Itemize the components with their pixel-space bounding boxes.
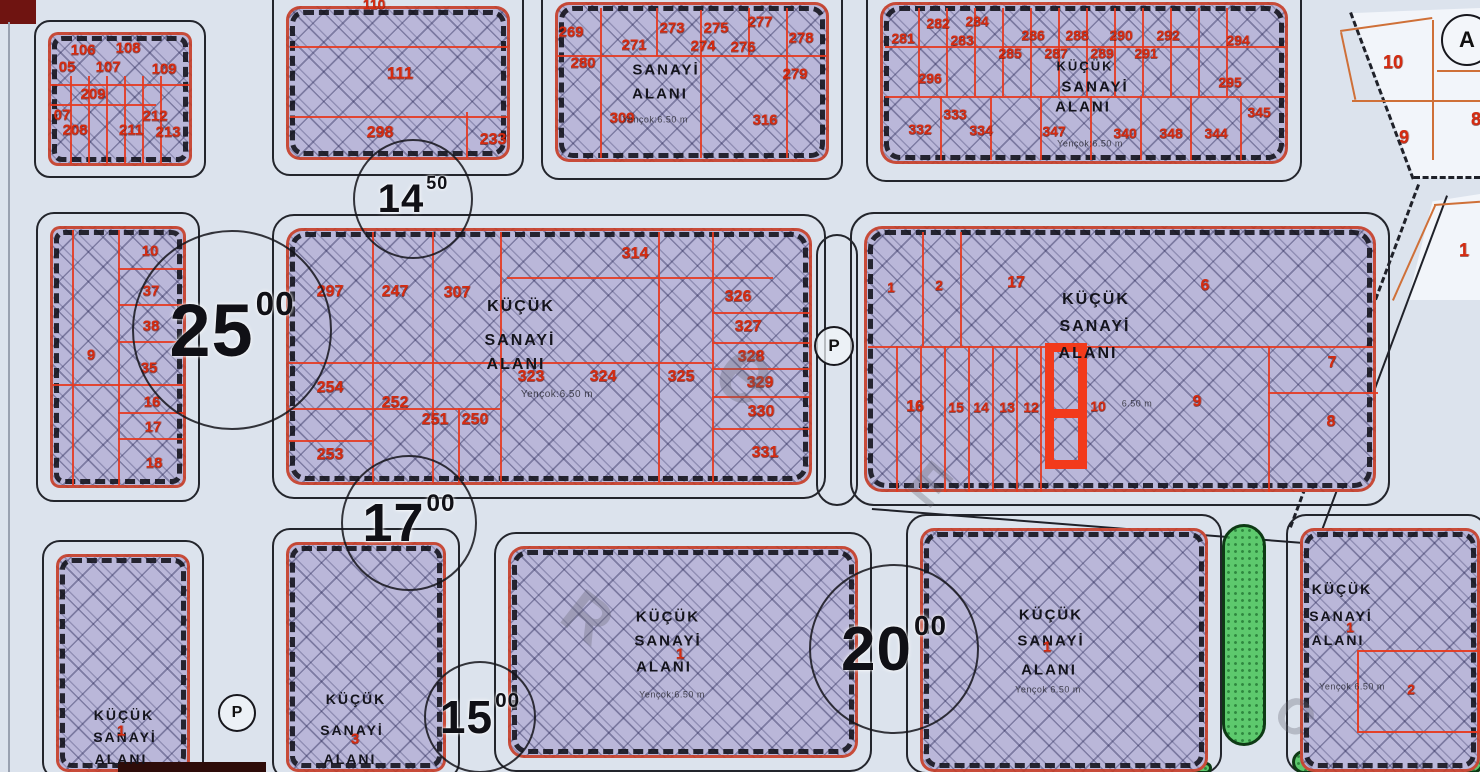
- area-label: ALANI: [1312, 633, 1365, 647]
- parcel-number: 345: [1247, 105, 1270, 119]
- parcel-number: 296: [918, 71, 941, 85]
- road-width-value: 1450: [378, 177, 449, 222]
- green-strip: [1222, 524, 1266, 746]
- area-label: KÜÇÜK: [1062, 292, 1130, 308]
- area-label: ALANI: [1059, 346, 1118, 362]
- parcel-line: [124, 76, 126, 164]
- parcel-number: 8: [1471, 110, 1480, 128]
- parcel-line: [885, 46, 1285, 48]
- parcel-number: 209: [80, 87, 105, 102]
- parcel-number: 314: [622, 246, 649, 262]
- parcel-number: 10: [142, 244, 159, 259]
- road-width-circle: 2000: [809, 564, 979, 734]
- road-width-value: 2500: [169, 288, 294, 373]
- parcel-number: 1: [1346, 620, 1354, 634]
- road-width-value: 1500: [440, 690, 520, 744]
- parcel-number: 326: [725, 289, 752, 305]
- parcel-number: 279: [782, 67, 807, 82]
- white-parcel-zone: [1408, 194, 1480, 300]
- parcel-number: 344: [1204, 126, 1227, 140]
- area-label: SANAYİ: [634, 634, 701, 649]
- parcel-number: 110: [363, 0, 386, 11]
- area-label: SANAYİ: [485, 333, 556, 349]
- map-edge-bar: [0, 0, 36, 24]
- parcel-number: 298: [367, 125, 394, 141]
- parcel-number: 05: [59, 60, 76, 75]
- parcel-line: [960, 232, 962, 346]
- parcel-line: [940, 96, 942, 160]
- parcel-number: 1: [676, 647, 684, 662]
- parcel-number: 10: [1383, 53, 1403, 71]
- parcel-number: 273: [659, 21, 684, 36]
- parcel-number: 288: [1065, 28, 1088, 42]
- selected-parcel-divider: [1052, 409, 1080, 418]
- parcel-number: 285: [998, 46, 1021, 60]
- parcel-number: 16: [906, 399, 924, 415]
- parcel-number: 18: [146, 456, 163, 471]
- parcel-number: 9: [1193, 394, 1202, 410]
- parcel-line-orange: [1437, 70, 1480, 72]
- area-label: KÜÇÜK: [1019, 608, 1083, 623]
- parcel-line: [1190, 96, 1192, 160]
- height-note: 6.50 m: [1122, 400, 1153, 409]
- parcel-number: 208: [62, 123, 87, 138]
- area-label: KÜÇÜK: [487, 299, 555, 315]
- parcel-number: 295: [1218, 75, 1241, 89]
- parcel-number: 334: [969, 123, 992, 137]
- parcel-number: 07: [54, 108, 71, 123]
- parcel-line: [106, 76, 108, 164]
- area-label: ALANI: [487, 357, 546, 373]
- parcel-line: [658, 232, 660, 483]
- parcel-number: 276: [730, 40, 755, 55]
- height-note: Yençok 6.50 m: [1015, 686, 1081, 695]
- parcel-number: 286: [1021, 28, 1044, 42]
- parcel-number: 281: [891, 31, 914, 45]
- parcel-line: [507, 277, 773, 279]
- parcel-number: 107: [95, 60, 120, 75]
- parcel-number: 10: [1090, 399, 1106, 413]
- area-label: SANAYİ: [1309, 609, 1373, 623]
- parcel-number: 212: [142, 109, 167, 124]
- parcel-number: 17: [1007, 275, 1025, 291]
- parking-circle: P: [218, 694, 256, 732]
- parcel-number: 15: [948, 400, 964, 414]
- height-note: Yençok 6.50 m: [1319, 683, 1385, 692]
- parcel-number: 307: [444, 285, 471, 301]
- road-width-value: 2000: [841, 614, 947, 685]
- parcel-number: 316: [752, 113, 777, 128]
- parcel-number: 290: [1109, 28, 1132, 42]
- parcel-line: [992, 346, 994, 492]
- parcel-number: 111: [387, 65, 414, 82]
- parcel-number: 9: [1399, 128, 1409, 146]
- parcel-line: [372, 232, 374, 483]
- parcel-number: 271: [621, 38, 646, 53]
- parcel-line: [868, 346, 1373, 348]
- parcel-line: [1040, 346, 1042, 492]
- parcel-number: 108: [115, 41, 140, 56]
- parcel-line: [700, 10, 702, 158]
- parcel-line: [712, 312, 810, 314]
- parcel-boundary-line: [1340, 32, 1356, 100]
- parcel-number: 253: [317, 447, 344, 463]
- road-width-value: 1700: [362, 492, 455, 554]
- area-label: KÜÇÜK: [326, 692, 387, 706]
- parcel-number: 12: [1023, 400, 1039, 414]
- parcel-line-orange: [1352, 100, 1480, 102]
- parcel-number: 324: [590, 369, 617, 385]
- parcel-line: [968, 346, 970, 492]
- height-note: Yençok:6.50 m: [639, 691, 705, 700]
- parking-circle: P: [814, 326, 854, 366]
- area-label: ALANI: [1055, 100, 1111, 115]
- parcel-number: 2: [1407, 682, 1415, 696]
- road-width-circle: 1450: [353, 139, 473, 259]
- area-label: ALANI: [632, 87, 688, 102]
- zoning-plan-map: 1061080510710920907212208211213110111298…: [0, 0, 1480, 772]
- parcel-number: 283: [950, 33, 973, 47]
- parcel-line-orange: [1432, 20, 1434, 160]
- parcel-line: [290, 116, 508, 118]
- height-note: Yençok:6.50 m: [1057, 140, 1123, 149]
- parcel-line: [1016, 346, 1018, 492]
- parcel-number: 333: [943, 107, 966, 121]
- parcel-number: 1: [887, 280, 895, 294]
- parcel-number: 332: [908, 122, 931, 136]
- parcel-number: 211: [119, 123, 143, 138]
- parcel-number: 109: [151, 62, 176, 77]
- area-label: SANAYİ: [632, 63, 699, 78]
- parcel-number: 1: [1043, 640, 1051, 655]
- parcel-number: 325: [668, 369, 695, 385]
- area-label: ALANI: [1021, 663, 1077, 678]
- parcel-number: 275: [703, 21, 728, 36]
- parcel-number: 347: [1042, 124, 1065, 138]
- parcel-number: 7: [1328, 355, 1337, 371]
- parcel-line: [432, 232, 434, 483]
- parcel-number: 277: [747, 15, 772, 30]
- parcel-number: 269: [558, 25, 583, 40]
- road-width-circle: 1500: [424, 661, 536, 772]
- parcel-number: 250: [462, 412, 489, 428]
- area-label: SANAYİ: [1060, 319, 1131, 335]
- parcel-number: 331: [752, 445, 779, 461]
- parcel-line: [1198, 8, 1200, 96]
- parcel-number: 106: [70, 43, 95, 58]
- parcel-line: [50, 84, 190, 86]
- parcel-line: [1268, 392, 1378, 394]
- parcel-number: 280: [570, 56, 595, 71]
- parcel-number: 13: [999, 400, 1015, 414]
- parcel-number: 291: [1134, 46, 1157, 60]
- parcel-line: [656, 8, 658, 56]
- parcel-line: [712, 428, 810, 430]
- parcel-line: [1140, 96, 1142, 160]
- parcel-number: 1: [117, 724, 125, 739]
- parcel-line: [922, 232, 924, 346]
- road-edge-line: [1414, 176, 1480, 179]
- parcel-number: 17: [145, 420, 162, 435]
- parcel-number: 348: [1159, 126, 1182, 140]
- parcel-number: 274: [690, 39, 715, 54]
- parcel-number: 292: [1156, 28, 1179, 42]
- parcel-number: 294: [1226, 33, 1249, 47]
- parcel-line: [290, 46, 508, 48]
- block-dashed-border: [290, 10, 506, 156]
- parcel-number: 284: [965, 14, 988, 28]
- parcel-line: [52, 384, 118, 386]
- parcel-line: [466, 112, 468, 158]
- area-label: KÜÇÜK: [1312, 582, 1373, 596]
- parcel-line: [1240, 96, 1242, 160]
- parcel-line: [712, 232, 714, 483]
- parcel-number: 213: [155, 125, 180, 140]
- parcel-line: [600, 8, 602, 158]
- parcel-number: 3: [351, 732, 359, 747]
- parcel-number: 6: [1201, 278, 1210, 294]
- parcel-number: 278: [788, 31, 813, 46]
- parcel-number: 9: [87, 348, 95, 363]
- area-label: ALANI: [95, 752, 148, 766]
- parcel-line: [1268, 346, 1270, 492]
- parcel-number: 252: [382, 395, 409, 411]
- parcel-number: 233: [480, 132, 507, 148]
- area-label: SANAYİ: [1061, 80, 1128, 95]
- parcel-line: [1030, 8, 1032, 96]
- parcel-line: [289, 440, 372, 442]
- parcel-line: [458, 408, 460, 483]
- parcel-number: 247: [382, 284, 409, 300]
- area-label: KÜÇÜK: [94, 708, 155, 722]
- road-width-circle: 2500: [132, 230, 332, 430]
- road-curb-line: [816, 234, 858, 506]
- parcel-number: 282: [926, 16, 949, 30]
- parcel-line: [72, 230, 74, 486]
- parcel-number: 1: [1459, 241, 1469, 259]
- parcel-line: [118, 438, 185, 440]
- parcel-number: 254: [317, 380, 344, 396]
- area-label: KÜÇÜK: [1057, 60, 1114, 73]
- area-label: ALANI: [324, 752, 377, 766]
- parcel-outline: [1357, 650, 1480, 733]
- parcel-line: [1170, 8, 1172, 96]
- parcel-number: 2: [935, 278, 943, 292]
- industrial-block: [286, 6, 510, 160]
- map-edge-bar: [8, 22, 10, 772]
- industrial-block: [864, 226, 1376, 492]
- parcel-number: 14: [973, 400, 989, 414]
- parcel-number: 8: [1327, 414, 1336, 430]
- parcel-number: 251: [422, 412, 449, 428]
- road-width-circle: 1700: [341, 455, 477, 591]
- height-note: Yençok:6.50 m: [622, 116, 688, 125]
- area-label: KÜÇÜK: [636, 610, 700, 625]
- parcel-line: [896, 346, 898, 492]
- height-note: Yençok:6.50 m: [521, 390, 593, 400]
